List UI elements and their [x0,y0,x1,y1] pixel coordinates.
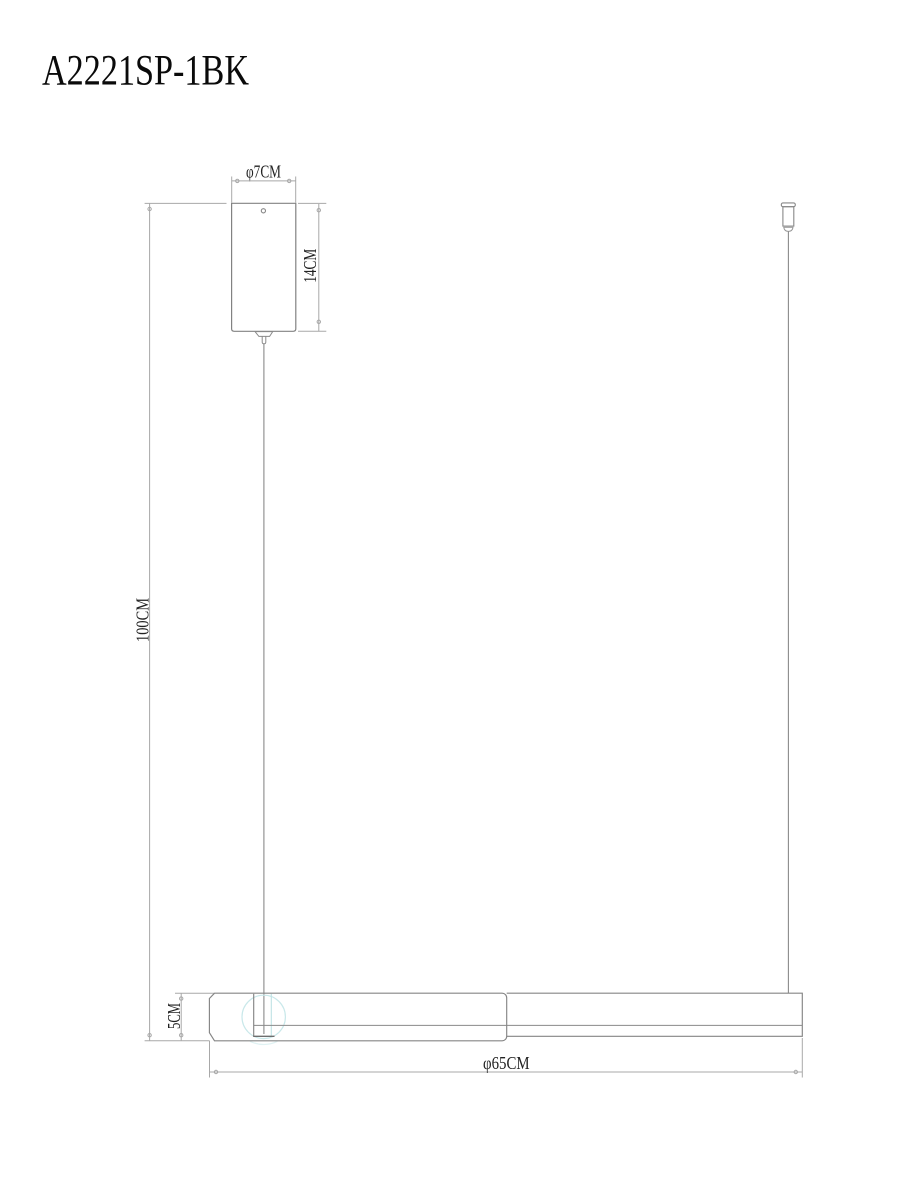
svg-text:φ7CM: φ7CM [246,161,281,181]
svg-text:5CM: 5CM [164,1003,184,1029]
svg-text:A2221SP-1BK: A2221SP-1BK [42,47,249,95]
svg-text:14CM: 14CM [300,248,320,282]
svg-text:φ65CM: φ65CM [483,1053,530,1073]
svg-text:100CM: 100CM [133,598,153,642]
